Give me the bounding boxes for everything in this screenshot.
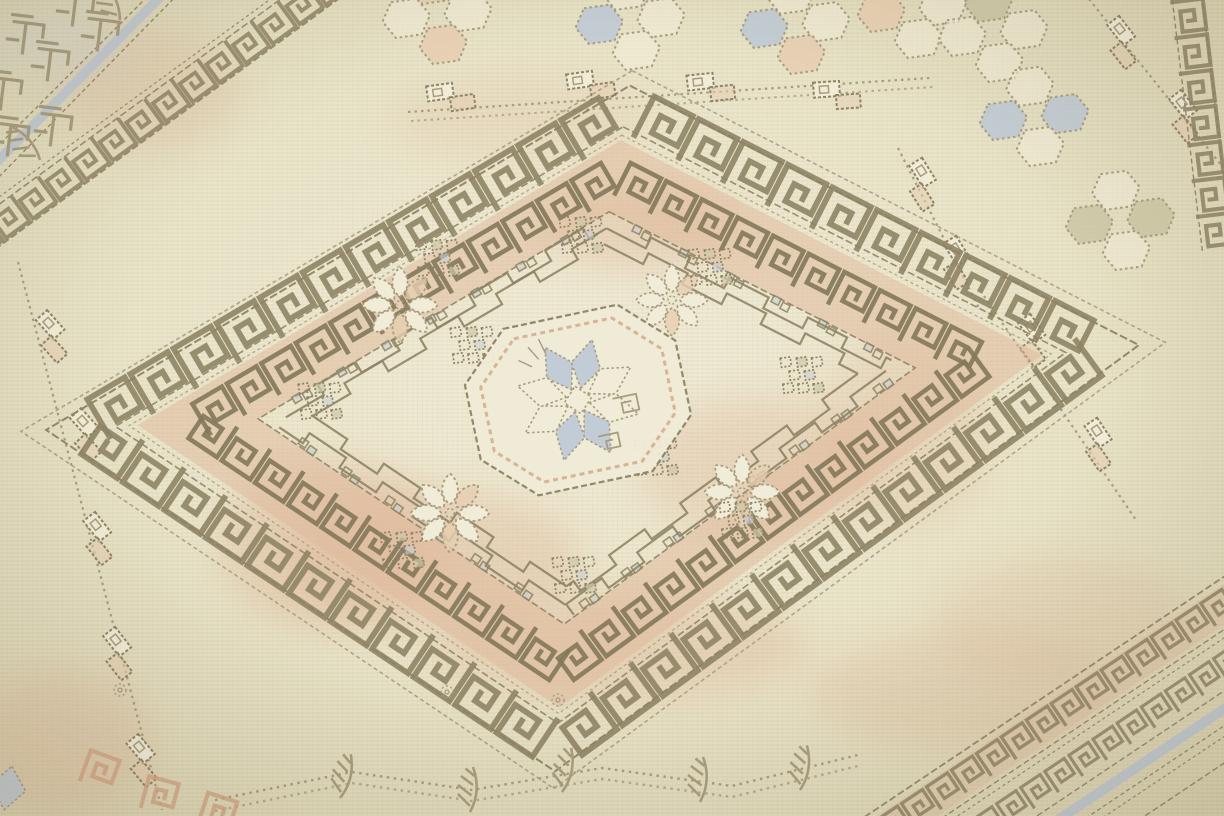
vignette-overlay (0, 0, 1224, 816)
carpet-photo-svg (0, 0, 1224, 816)
carpet-photo (0, 0, 1224, 816)
